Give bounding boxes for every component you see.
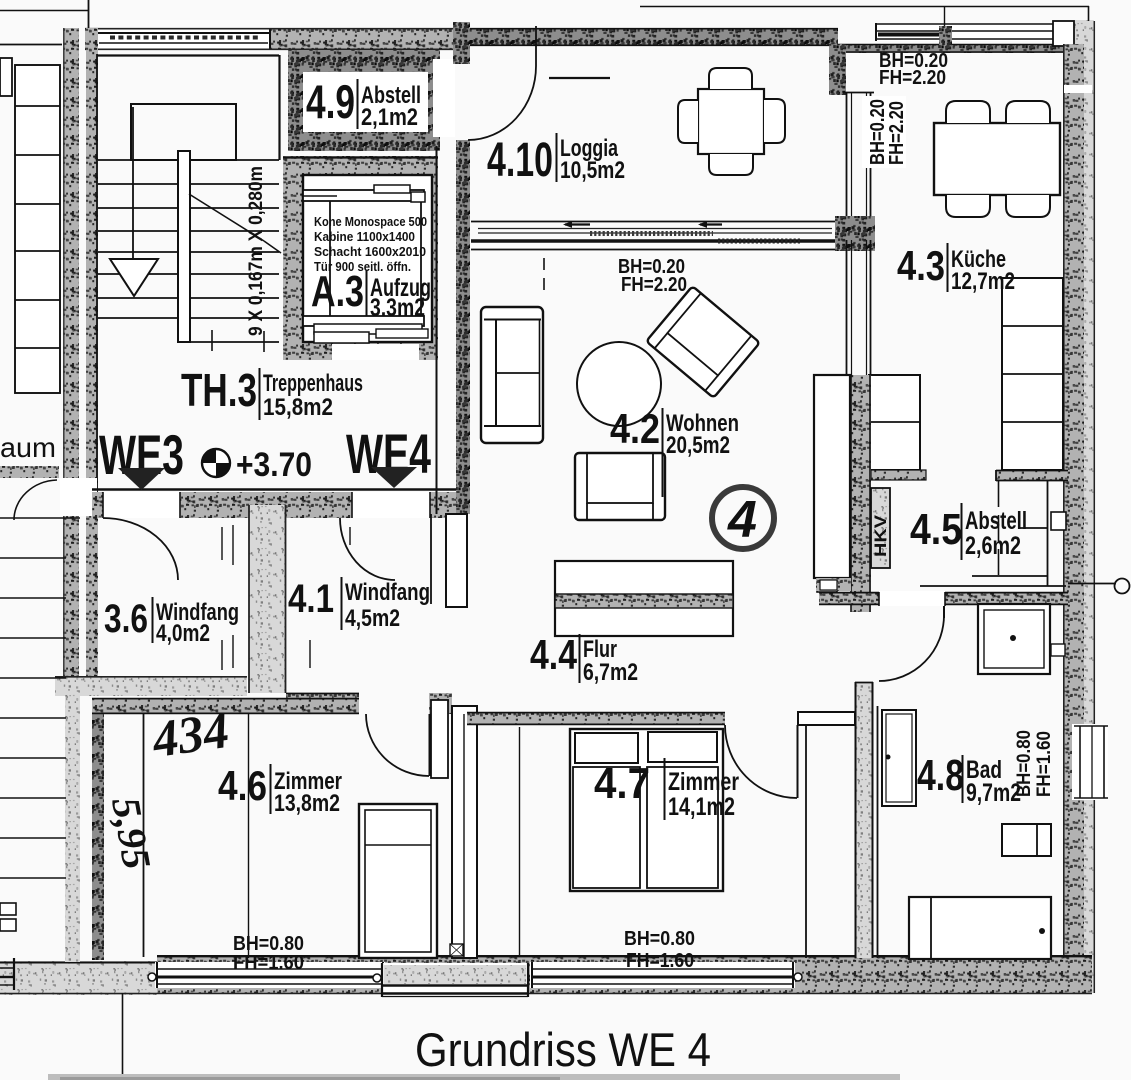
svg-text:Windfang: Windfang	[345, 579, 430, 606]
svg-text:4,5m2: 4,5m2	[345, 605, 400, 632]
svg-text:aum: aum	[0, 432, 56, 463]
svg-text:4.5: 4.5	[910, 505, 962, 554]
svg-text:Abstell: Abstell	[965, 507, 1027, 535]
svg-text:4: 4	[727, 491, 757, 549]
svg-text:4.9: 4.9	[306, 75, 355, 128]
svg-text:4.4: 4.4	[530, 631, 578, 678]
svg-text:12,7m2: 12,7m2	[951, 268, 1015, 295]
svg-text:Schacht 1600x2010: Schacht 1600x2010	[314, 244, 426, 259]
svg-text:20,5m2: 20,5m2	[666, 432, 730, 459]
svg-text:Kabine 1100x1400: Kabine 1100x1400	[314, 229, 415, 244]
svg-text:A.3: A.3	[311, 267, 364, 316]
svg-text:9 X 0,167m X 0,280m: 9 X 0,167m X 0,280m	[246, 166, 267, 336]
svg-text:FH=2.20: FH=2.20	[879, 67, 946, 89]
svg-text:14,1m2: 14,1m2	[668, 793, 735, 821]
svg-text:Treppenhaus: Treppenhaus	[263, 370, 363, 397]
svg-text:BH=0.80: BH=0.80	[624, 928, 695, 950]
svg-text:HKV: HKV	[871, 514, 890, 557]
svg-text:2,6m2: 2,6m2	[965, 532, 1021, 560]
svg-text:4,0m2: 4,0m2	[156, 620, 210, 647]
svg-text:Zimmer: Zimmer	[668, 768, 739, 796]
svg-text:4.8: 4.8	[917, 751, 964, 800]
svg-text:FH=2.20: FH=2.20	[621, 274, 687, 296]
svg-text:FH=1.60: FH=1.60	[626, 950, 694, 972]
svg-text:13,8m2: 13,8m2	[274, 790, 340, 817]
svg-text:FH=2.20: FH=2.20	[886, 101, 908, 165]
svg-text:FH=1.60: FH=1.60	[1034, 731, 1055, 797]
svg-text:TH.3: TH.3	[181, 364, 257, 416]
svg-text:434: 434	[148, 702, 232, 769]
svg-text:4.2: 4.2	[610, 405, 660, 452]
svg-text:10,5m2: 10,5m2	[560, 157, 625, 184]
svg-text:4.6: 4.6	[218, 762, 267, 809]
svg-text:4.7: 4.7	[594, 759, 650, 808]
svg-text:Grundriss WE 4: Grundriss WE 4	[415, 1023, 711, 1076]
svg-text:6,7m2: 6,7m2	[583, 659, 638, 686]
svg-text:3.6: 3.6	[104, 597, 148, 641]
svg-text:9,7m2: 9,7m2	[966, 779, 1021, 807]
svg-text:15,8m2: 15,8m2	[263, 394, 333, 421]
svg-text:4.1: 4.1	[288, 577, 334, 621]
svg-text:2,1m2: 2,1m2	[361, 104, 418, 131]
svg-text:4.3: 4.3	[897, 242, 945, 289]
svg-text:Kone Monospace 500: Kone Monospace 500	[314, 214, 427, 229]
svg-text:+3.70: +3.70	[236, 446, 312, 484]
svg-text:4.10: 4.10	[487, 134, 553, 187]
svg-text:FH=1.60: FH=1.60	[233, 952, 304, 974]
svg-text:BH=0.80: BH=0.80	[1014, 730, 1035, 797]
